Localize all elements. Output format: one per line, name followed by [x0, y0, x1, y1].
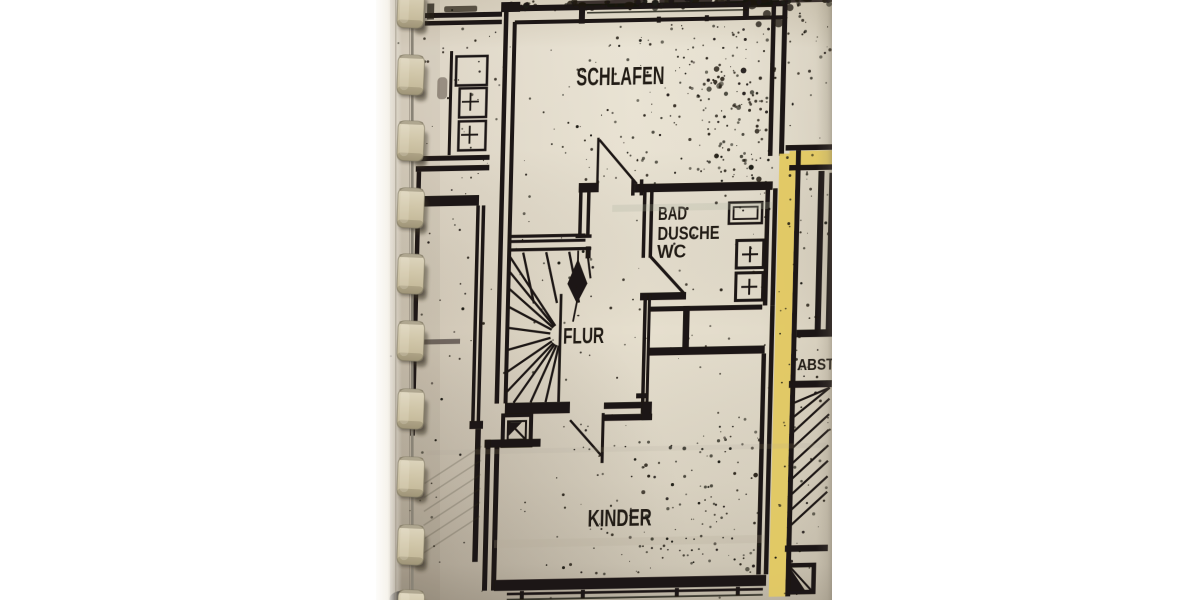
svg-text:KINDER: KINDER [587, 505, 652, 533]
svg-text:DUSCHE: DUSCHE [657, 223, 719, 244]
svg-text:WC: WC [657, 242, 686, 263]
svg-text:SCHLAFEN: SCHLAFEN [576, 62, 665, 92]
svg-text:FLUR: FLUR [563, 323, 605, 349]
